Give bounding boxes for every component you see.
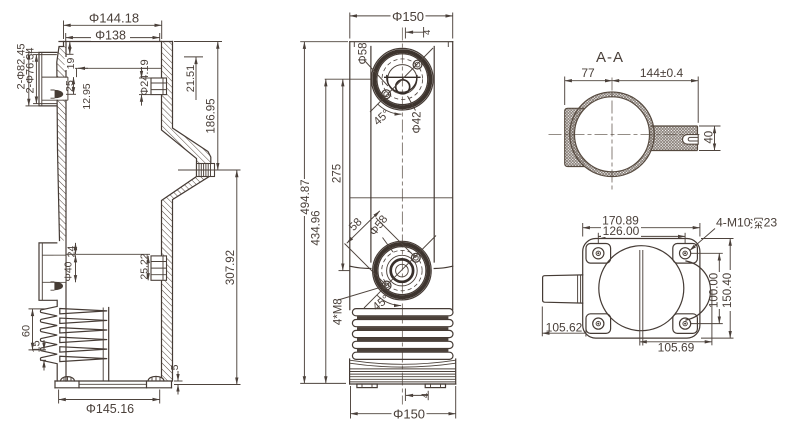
svg-text:Φ42: Φ42	[411, 112, 423, 134]
svg-text:Φ58: Φ58	[358, 43, 370, 65]
svg-text:Φ144.18: Φ144.18	[89, 11, 139, 26]
svg-text:307.92: 307.92	[225, 250, 237, 285]
svg-text:186.95: 186.95	[206, 98, 218, 133]
svg-text:A-A: A-A	[596, 49, 624, 66]
svg-text:21.51: 21.51	[185, 65, 197, 93]
svg-text:23: 23	[764, 216, 778, 230]
svg-text:Φ150: Φ150	[392, 9, 424, 24]
svg-text:Φ150: Φ150	[393, 406, 425, 421]
svg-text:60: 60	[21, 325, 33, 337]
svg-text:77: 77	[581, 66, 595, 80]
svg-text:275: 275	[332, 164, 344, 183]
svg-text:12.95: 12.95	[81, 83, 93, 109]
svg-text:Φ40: Φ40	[63, 261, 75, 281]
svg-text:4: 4	[420, 393, 431, 398]
svg-text:126.00: 126.00	[603, 224, 640, 238]
svg-text:5: 5	[169, 364, 181, 370]
svg-text:494.87: 494.87	[300, 179, 312, 214]
svg-text:105.69: 105.69	[658, 341, 695, 355]
svg-text:40: 40	[703, 131, 715, 144]
svg-text:100.00: 100.00	[708, 273, 720, 308]
svg-text:4: 4	[422, 30, 433, 35]
svg-text:19: 19	[65, 58, 77, 70]
svg-text:Φ145.16: Φ145.16	[86, 402, 134, 416]
svg-text:105.62: 105.62	[546, 321, 583, 335]
svg-text:434.96: 434.96	[311, 210, 323, 245]
svg-text:4*M8: 4*M8	[333, 298, 345, 325]
svg-text:2-Φ76.34: 2-Φ76.34	[25, 47, 37, 93]
svg-text:144±0.4: 144±0.4	[640, 66, 684, 80]
svg-text:25.22: 25.22	[138, 253, 150, 279]
svg-text:25: 25	[64, 80, 76, 92]
svg-text:Φ138: Φ138	[95, 29, 126, 43]
svg-text:15: 15	[31, 340, 43, 352]
svg-text:150.40: 150.40	[722, 273, 734, 308]
svg-text:Φ24.19: Φ24.19	[139, 59, 151, 95]
svg-text:4-M10: 4-M10	[716, 216, 751, 230]
